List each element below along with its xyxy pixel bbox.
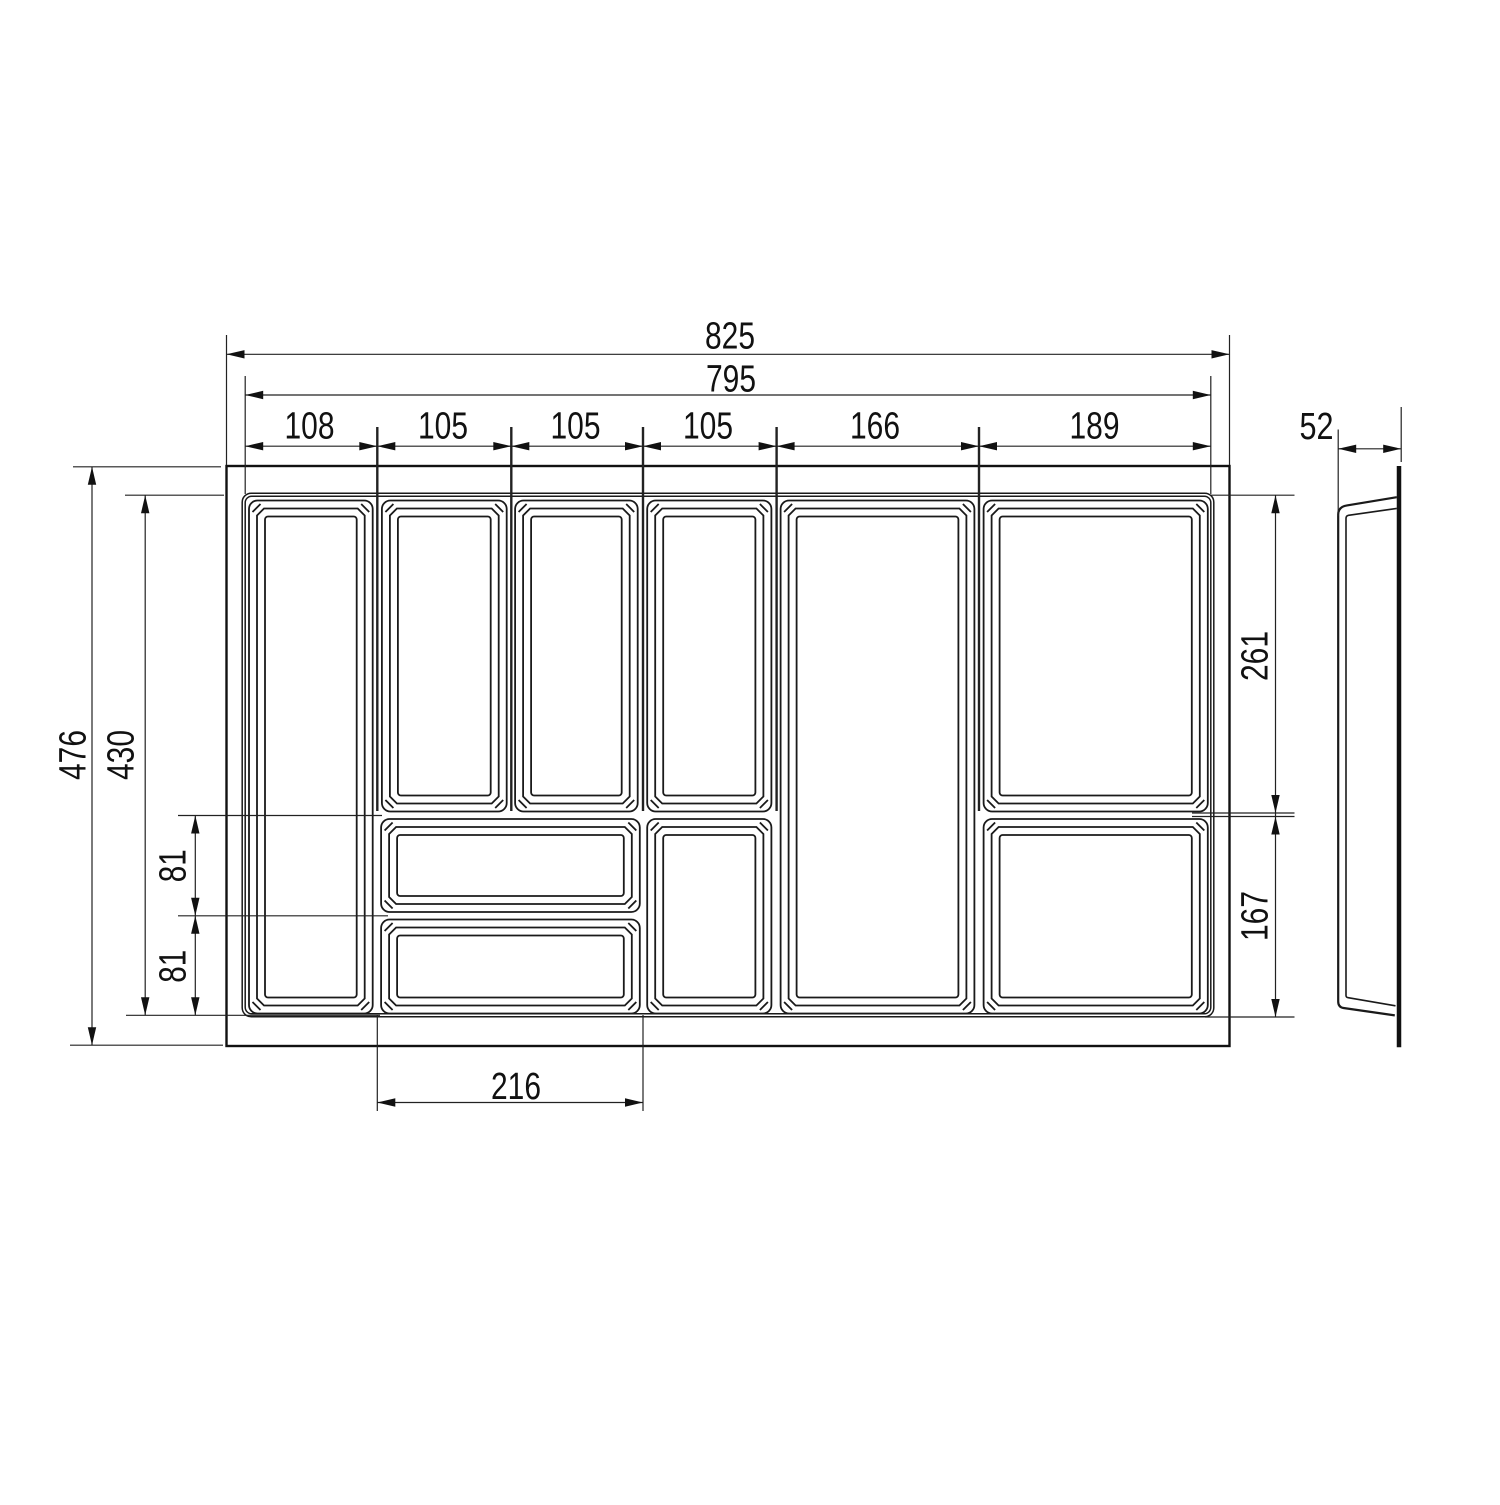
svg-text:166: 166 (850, 406, 900, 448)
svg-text:81: 81 (152, 950, 194, 983)
svg-text:795: 795 (706, 359, 756, 401)
svg-text:105: 105 (683, 406, 733, 448)
svg-text:108: 108 (285, 406, 335, 448)
svg-text:105: 105 (418, 406, 468, 448)
svg-text:261: 261 (1235, 631, 1277, 681)
svg-text:189: 189 (1070, 406, 1120, 448)
svg-text:216: 216 (491, 1066, 541, 1108)
svg-text:52: 52 (1300, 406, 1334, 448)
svg-text:105: 105 (551, 406, 601, 448)
svg-text:81: 81 (152, 849, 194, 882)
svg-text:430: 430 (101, 730, 143, 780)
svg-text:476: 476 (53, 730, 95, 780)
svg-text:825: 825 (705, 315, 755, 357)
svg-text:167: 167 (1235, 891, 1277, 941)
